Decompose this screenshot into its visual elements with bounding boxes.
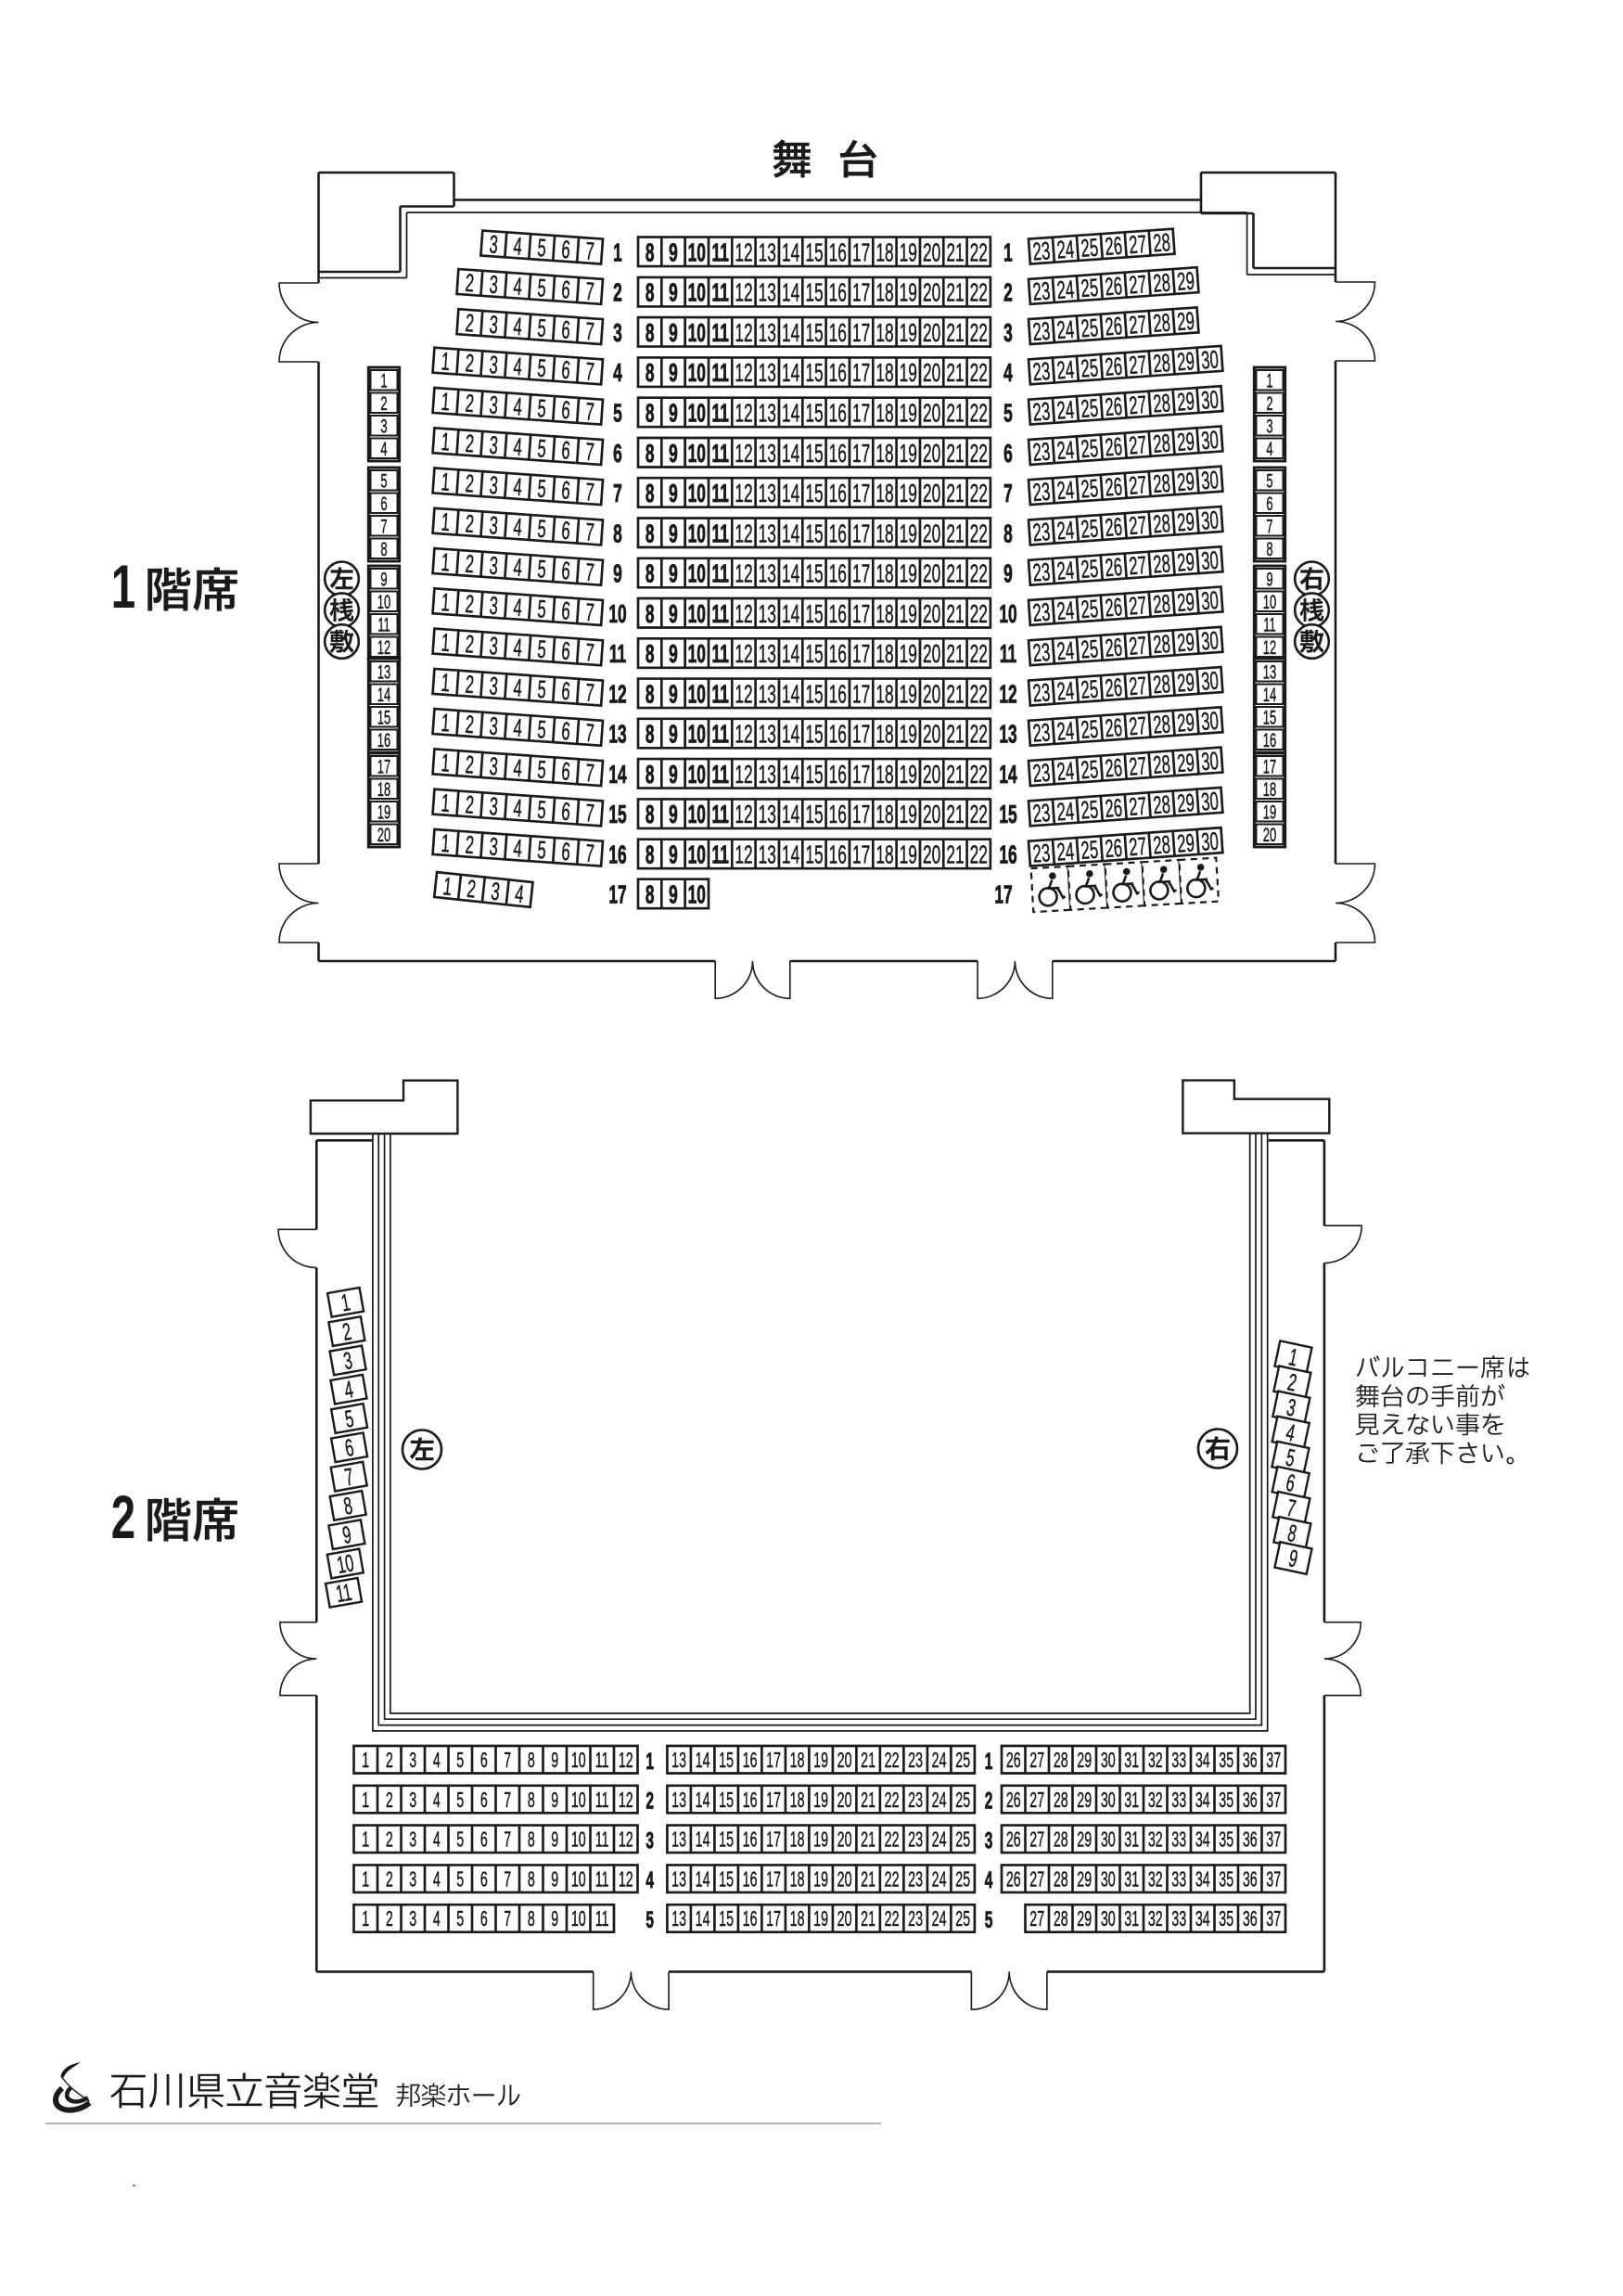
svg-text:12: 12: [735, 760, 752, 789]
svg-text:17: 17: [766, 1828, 781, 1852]
svg-text:26: 26: [1006, 1750, 1021, 1773]
svg-text:37: 37: [1266, 1750, 1281, 1773]
svg-text:2: 2: [645, 1789, 654, 1815]
svg-text:13: 13: [759, 398, 776, 427]
svg-text:10: 10: [688, 358, 706, 387]
svg-text:2: 2: [111, 1483, 135, 1551]
svg-text:33: 33: [1171, 1789, 1186, 1813]
svg-text:16: 16: [743, 1868, 758, 1892]
svg-text:28: 28: [1152, 590, 1171, 619]
svg-text:25: 25: [1080, 715, 1099, 744]
svg-text:8: 8: [645, 719, 655, 748]
svg-text:29: 29: [1176, 668, 1195, 697]
svg-text:29: 29: [1176, 307, 1195, 336]
svg-text:27: 27: [1128, 391, 1147, 419]
svg-text:23: 23: [908, 1828, 923, 1852]
svg-text:30: 30: [1200, 667, 1220, 696]
svg-text:11: 11: [595, 1750, 609, 1773]
svg-text:26: 26: [1104, 834, 1123, 863]
svg-text:25: 25: [1080, 514, 1099, 543]
svg-text:24: 24: [1056, 596, 1076, 625]
svg-text:36: 36: [1243, 1828, 1258, 1852]
svg-text:8: 8: [645, 840, 655, 868]
svg-text:25: 25: [1080, 755, 1099, 784]
svg-text:8: 8: [645, 318, 655, 347]
svg-text:29: 29: [1176, 628, 1195, 657]
svg-text:17: 17: [852, 800, 870, 828]
svg-text:9: 9: [669, 679, 678, 708]
svg-text:18: 18: [875, 398, 893, 427]
svg-text:16: 16: [999, 840, 1016, 868]
svg-text:28: 28: [1152, 309, 1171, 338]
svg-text:4: 4: [433, 1908, 441, 1931]
svg-text:12: 12: [735, 439, 752, 468]
svg-text:34: 34: [1195, 1868, 1210, 1892]
svg-text:6: 6: [1266, 493, 1272, 515]
svg-text:14: 14: [782, 358, 799, 387]
svg-text:22: 22: [885, 1908, 900, 1931]
svg-text:27: 27: [1029, 1828, 1044, 1852]
svg-text:29: 29: [1176, 749, 1195, 777]
svg-text:8: 8: [528, 1908, 535, 1931]
svg-text:10: 10: [571, 1908, 586, 1931]
svg-text:28: 28: [1054, 1868, 1068, 1892]
svg-text:12: 12: [619, 1828, 633, 1852]
svg-text:3: 3: [1003, 318, 1013, 347]
svg-text:19: 19: [813, 1828, 828, 1852]
svg-text:8: 8: [645, 519, 655, 547]
svg-text:3: 3: [1266, 415, 1272, 437]
svg-text:20: 20: [837, 1868, 852, 1892]
svg-text:29: 29: [1176, 507, 1195, 536]
svg-text:10: 10: [688, 318, 706, 347]
svg-text:17: 17: [852, 358, 870, 387]
svg-text:25: 25: [1080, 234, 1099, 263]
svg-text:23: 23: [1032, 478, 1052, 507]
svg-text:12: 12: [735, 558, 752, 587]
svg-text:8: 8: [645, 879, 655, 908]
svg-text:21: 21: [946, 599, 964, 628]
svg-text:16: 16: [829, 318, 847, 347]
svg-text:10: 10: [688, 639, 706, 668]
svg-text:26: 26: [1104, 593, 1123, 622]
svg-text:20: 20: [923, 599, 940, 628]
svg-text:28: 28: [1054, 1908, 1068, 1931]
svg-text:20: 20: [837, 1908, 852, 1931]
svg-text:15: 15: [805, 398, 823, 427]
svg-text:28: 28: [1152, 670, 1171, 699]
svg-text:29: 29: [1176, 468, 1195, 496]
svg-text:13: 13: [608, 719, 626, 748]
svg-text:24: 24: [1056, 276, 1076, 304]
svg-text:28: 28: [1152, 228, 1171, 257]
svg-text:24: 24: [1056, 315, 1076, 344]
svg-text:29: 29: [1176, 828, 1195, 857]
svg-text:12: 12: [377, 636, 390, 659]
svg-text:22: 22: [970, 558, 988, 587]
svg-text:10: 10: [688, 800, 706, 828]
svg-text:1: 1: [362, 1789, 369, 1813]
svg-text:17: 17: [766, 1789, 781, 1813]
svg-text:4: 4: [380, 438, 387, 460]
svg-text:9: 9: [551, 1868, 558, 1892]
svg-text:10: 10: [571, 1789, 586, 1813]
svg-text:15: 15: [719, 1789, 734, 1813]
svg-text:11: 11: [712, 237, 729, 266]
svg-text:28: 28: [1152, 349, 1171, 378]
svg-text:21: 21: [861, 1868, 875, 1892]
svg-text:29: 29: [1176, 789, 1195, 817]
svg-text:30: 30: [1200, 426, 1220, 455]
svg-text:21: 21: [946, 679, 964, 708]
svg-text:17: 17: [852, 840, 870, 868]
svg-text:10: 10: [688, 479, 706, 507]
svg-text:19: 19: [900, 840, 917, 868]
svg-text:25: 25: [955, 1908, 970, 1931]
svg-text:1: 1: [613, 237, 622, 266]
svg-text:17: 17: [852, 237, 870, 266]
svg-text:25: 25: [1080, 314, 1099, 342]
svg-text:26: 26: [1104, 633, 1123, 661]
svg-text:14: 14: [696, 1828, 710, 1852]
svg-text:29: 29: [1176, 387, 1195, 416]
svg-text:15: 15: [805, 719, 823, 748]
svg-text:30: 30: [1200, 626, 1220, 655]
svg-text:9: 9: [669, 639, 678, 668]
svg-text:13: 13: [671, 1750, 686, 1773]
svg-text:16: 16: [743, 1828, 758, 1852]
svg-text:25: 25: [1080, 635, 1099, 663]
svg-text:19: 19: [900, 679, 917, 708]
svg-text:22: 22: [885, 1750, 900, 1773]
svg-text:23: 23: [908, 1908, 923, 1931]
svg-text:20: 20: [923, 558, 940, 587]
svg-text:27: 27: [1128, 832, 1147, 861]
svg-text:15: 15: [805, 479, 823, 507]
svg-text:5: 5: [613, 398, 622, 427]
svg-text:8: 8: [528, 1789, 535, 1813]
svg-text:19: 19: [900, 800, 917, 828]
svg-text:34: 34: [1195, 1750, 1210, 1773]
svg-text:23: 23: [1032, 438, 1052, 467]
svg-text:23: 23: [1032, 678, 1052, 707]
svg-text:26: 26: [1104, 673, 1123, 702]
svg-text:19: 19: [900, 639, 917, 668]
svg-text:1: 1: [380, 369, 387, 391]
svg-text:31: 31: [1124, 1750, 1139, 1773]
svg-text:14: 14: [696, 1908, 710, 1931]
svg-text:15: 15: [1263, 706, 1276, 728]
svg-text:10: 10: [688, 840, 706, 868]
svg-text:4: 4: [433, 1828, 441, 1852]
svg-text:9: 9: [551, 1789, 558, 1813]
svg-text:13: 13: [759, 639, 776, 668]
svg-text:1: 1: [362, 1828, 369, 1852]
svg-text:6: 6: [480, 1828, 488, 1852]
svg-text:27: 27: [1128, 471, 1147, 500]
svg-text:10: 10: [377, 591, 391, 613]
svg-text:12: 12: [735, 479, 752, 507]
svg-text:30: 30: [1101, 1789, 1116, 1813]
svg-text:16: 16: [829, 237, 847, 266]
svg-text:18: 18: [377, 778, 390, 801]
svg-text:27: 27: [1128, 751, 1147, 780]
svg-text:19: 19: [900, 760, 917, 789]
svg-text:20: 20: [923, 519, 940, 547]
svg-text:9: 9: [669, 358, 678, 387]
svg-text:8: 8: [645, 237, 655, 266]
svg-text:4: 4: [645, 1868, 654, 1894]
svg-text:18: 18: [790, 1868, 805, 1892]
svg-text:24: 24: [932, 1868, 947, 1892]
svg-text:11: 11: [712, 760, 729, 789]
svg-text:28: 28: [1054, 1750, 1068, 1773]
svg-text:26: 26: [1104, 713, 1123, 742]
svg-text:12: 12: [735, 719, 752, 748]
svg-text:9: 9: [669, 519, 678, 547]
svg-text:25: 25: [1080, 795, 1099, 824]
svg-text:9: 9: [669, 439, 678, 468]
svg-text:27: 27: [1029, 1908, 1044, 1931]
svg-text:24: 24: [1056, 837, 1076, 866]
svg-text:20: 20: [923, 679, 940, 708]
svg-text:27: 27: [1128, 511, 1147, 540]
svg-text:13: 13: [759, 760, 776, 789]
svg-text:10: 10: [608, 599, 626, 628]
svg-text:5: 5: [645, 1907, 654, 1933]
svg-text:12: 12: [999, 679, 1016, 708]
svg-text:22: 22: [970, 519, 988, 547]
svg-text:20: 20: [923, 358, 940, 387]
svg-text:17: 17: [852, 318, 870, 347]
svg-text:13: 13: [671, 1868, 686, 1892]
svg-text:14: 14: [377, 684, 391, 706]
svg-text:7: 7: [504, 1828, 511, 1852]
svg-text:8: 8: [645, 398, 655, 427]
svg-text:9: 9: [669, 277, 678, 306]
svg-text:2: 2: [386, 1828, 393, 1852]
svg-text:21: 21: [946, 398, 964, 427]
svg-text:6: 6: [1003, 439, 1013, 468]
svg-text:15: 15: [719, 1750, 734, 1773]
svg-text:30: 30: [1200, 386, 1220, 415]
svg-text:24: 24: [1056, 355, 1076, 384]
svg-text:5: 5: [1003, 398, 1013, 427]
svg-text:7: 7: [504, 1750, 511, 1773]
svg-text:9: 9: [613, 558, 622, 587]
svg-text:27: 27: [1128, 230, 1147, 259]
svg-text:4: 4: [1003, 358, 1013, 387]
svg-text:11: 11: [712, 277, 729, 306]
svg-text:36: 36: [1243, 1908, 1258, 1931]
svg-text:36: 36: [1243, 1868, 1258, 1892]
svg-text:7: 7: [380, 515, 387, 537]
svg-text:21: 21: [946, 639, 964, 668]
svg-text:8: 8: [645, 479, 655, 507]
svg-text:27: 27: [1128, 270, 1147, 299]
svg-text:21: 21: [861, 1828, 875, 1852]
svg-text:15: 15: [999, 800, 1016, 828]
svg-text:20: 20: [923, 840, 940, 868]
svg-text:18: 18: [875, 519, 893, 547]
svg-text:16: 16: [829, 519, 847, 547]
svg-text:16: 16: [743, 1789, 758, 1813]
svg-text:6: 6: [480, 1868, 488, 1892]
svg-text:25: 25: [955, 1789, 970, 1813]
svg-text:9: 9: [551, 1908, 558, 1931]
svg-text:37: 37: [1266, 1789, 1281, 1813]
svg-text:9: 9: [551, 1750, 558, 1773]
svg-text:21: 21: [946, 479, 964, 507]
svg-text:18: 18: [875, 318, 893, 347]
svg-text:21: 21: [946, 237, 964, 266]
svg-text:29: 29: [1176, 267, 1195, 296]
svg-text:11: 11: [1263, 613, 1276, 635]
svg-text:24: 24: [932, 1750, 947, 1773]
svg-text:24: 24: [1056, 557, 1076, 585]
svg-text:30: 30: [1200, 747, 1220, 776]
svg-text:29: 29: [1176, 548, 1195, 577]
svg-text:8: 8: [645, 439, 655, 468]
svg-text:21: 21: [946, 760, 964, 789]
svg-text:28: 28: [1152, 469, 1171, 498]
svg-text:14: 14: [1263, 684, 1277, 706]
svg-text:7: 7: [1003, 479, 1013, 507]
svg-text:12: 12: [735, 840, 752, 868]
svg-text:14: 14: [782, 760, 799, 789]
svg-text:14: 14: [696, 1750, 710, 1773]
svg-text:15: 15: [377, 706, 390, 728]
svg-text:11: 11: [712, 639, 729, 668]
svg-text:19: 19: [813, 1789, 828, 1813]
svg-text:2: 2: [985, 1789, 993, 1815]
svg-text:37: 37: [1266, 1868, 1281, 1892]
svg-text:24: 24: [1056, 717, 1076, 746]
svg-text:9: 9: [1003, 558, 1013, 587]
svg-text:28: 28: [1152, 268, 1171, 297]
svg-text:7: 7: [613, 479, 622, 507]
svg-text:14: 14: [782, 318, 799, 347]
svg-text:14: 14: [782, 558, 799, 587]
svg-text:19: 19: [900, 358, 917, 387]
svg-text:28: 28: [1054, 1789, 1068, 1813]
svg-text:19: 19: [900, 318, 917, 347]
svg-text:3: 3: [409, 1908, 416, 1931]
svg-text:6: 6: [480, 1789, 488, 1813]
svg-text:10: 10: [688, 558, 706, 587]
svg-text:22: 22: [970, 599, 988, 628]
svg-text:24: 24: [1056, 235, 1076, 263]
svg-text:8: 8: [645, 760, 655, 789]
svg-text:1: 1: [362, 1908, 369, 1931]
svg-text:9: 9: [551, 1828, 558, 1852]
svg-text:25: 25: [1080, 434, 1099, 463]
svg-text:26: 26: [1104, 232, 1123, 261]
svg-text:1: 1: [1266, 369, 1272, 391]
svg-text:9: 9: [669, 719, 678, 748]
svg-text:12: 12: [608, 679, 626, 708]
svg-text:22: 22: [970, 479, 988, 507]
svg-text:13: 13: [671, 1908, 686, 1931]
svg-text:28: 28: [1152, 389, 1171, 417]
svg-text:27: 27: [1128, 430, 1147, 459]
svg-text:12: 12: [735, 639, 752, 668]
svg-text:18: 18: [875, 439, 893, 468]
svg-text:30: 30: [1101, 1908, 1116, 1931]
svg-text:1: 1: [362, 1868, 369, 1892]
svg-text:20: 20: [837, 1789, 852, 1813]
svg-text:11: 11: [712, 840, 729, 868]
svg-text:31: 31: [1124, 1868, 1139, 1892]
svg-text:21: 21: [946, 840, 964, 868]
svg-text:13: 13: [759, 599, 776, 628]
svg-text:13: 13: [759, 719, 776, 748]
svg-text:37: 37: [1266, 1828, 1281, 1852]
svg-text:19: 19: [900, 558, 917, 587]
svg-text:15: 15: [805, 318, 823, 347]
svg-text:16: 16: [377, 729, 390, 751]
svg-text:12: 12: [735, 599, 752, 628]
svg-text:15: 15: [805, 639, 823, 668]
svg-text:21: 21: [861, 1789, 875, 1813]
svg-text:16: 16: [743, 1908, 758, 1931]
svg-text:26: 26: [1104, 794, 1123, 823]
svg-text:18: 18: [875, 358, 893, 387]
svg-text:28: 28: [1152, 750, 1171, 779]
svg-text:15: 15: [608, 800, 626, 828]
svg-text:10: 10: [571, 1750, 586, 1773]
svg-text:27: 27: [1029, 1789, 1044, 1813]
svg-text:21: 21: [946, 318, 964, 347]
svg-text:28: 28: [1152, 509, 1171, 538]
svg-text:5: 5: [380, 469, 387, 492]
svg-text:17: 17: [852, 760, 870, 789]
svg-text:16: 16: [829, 679, 847, 708]
svg-text:13: 13: [759, 519, 776, 547]
svg-text:23: 23: [908, 1868, 923, 1892]
svg-text:16: 16: [829, 479, 847, 507]
svg-text:19: 19: [900, 599, 917, 628]
svg-text:24: 24: [932, 1828, 947, 1852]
svg-text:27: 27: [1128, 632, 1147, 661]
svg-text:26: 26: [1104, 392, 1123, 421]
svg-text:25: 25: [955, 1828, 970, 1852]
svg-text:8: 8: [645, 599, 655, 628]
svg-text:3: 3: [380, 415, 387, 437]
svg-text:30: 30: [1101, 1750, 1116, 1773]
svg-text:3: 3: [645, 1828, 654, 1854]
svg-text:20: 20: [923, 398, 940, 427]
svg-text:15: 15: [805, 760, 823, 789]
svg-text:27: 27: [1128, 672, 1147, 700]
svg-text:10: 10: [688, 398, 706, 427]
svg-text:26: 26: [1104, 513, 1123, 542]
svg-text:20: 20: [837, 1828, 852, 1852]
svg-text:14: 14: [782, 719, 799, 748]
svg-text:2: 2: [386, 1789, 393, 1813]
svg-text:11: 11: [712, 479, 729, 507]
svg-text:21: 21: [946, 358, 964, 387]
svg-text:16: 16: [829, 719, 847, 748]
svg-text:17: 17: [852, 599, 870, 628]
svg-text:13: 13: [999, 719, 1016, 748]
svg-text:29: 29: [1176, 428, 1195, 456]
svg-text:13: 13: [759, 800, 776, 828]
svg-text:16: 16: [829, 760, 847, 789]
svg-text:23: 23: [1032, 397, 1052, 426]
svg-text:16: 16: [829, 639, 847, 668]
svg-text:22: 22: [970, 439, 988, 468]
